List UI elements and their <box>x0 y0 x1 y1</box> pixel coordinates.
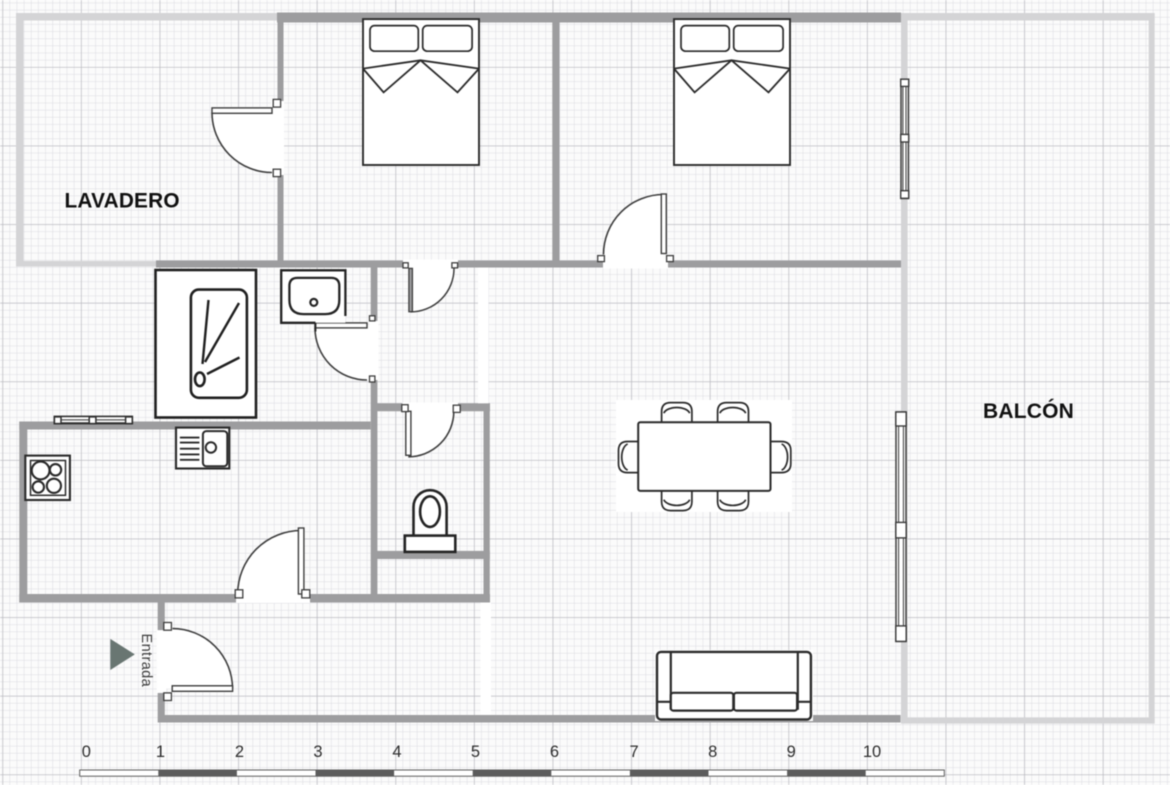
svg-text:10: 10 <box>863 743 881 761</box>
svg-text:0: 0 <box>82 743 91 761</box>
svg-text:8: 8 <box>708 743 717 761</box>
svg-text:BALCÓN: BALCÓN <box>983 399 1074 423</box>
svg-text:2: 2 <box>235 743 244 761</box>
svg-text:6: 6 <box>550 743 559 761</box>
svg-text:7: 7 <box>630 743 639 761</box>
svg-text:5: 5 <box>471 743 480 761</box>
svg-text:LAVADERO: LAVADERO <box>65 190 180 213</box>
svg-text:4: 4 <box>392 743 401 761</box>
svg-text:Entrada: Entrada <box>138 634 154 688</box>
svg-text:1: 1 <box>156 743 165 761</box>
svg-text:3: 3 <box>313 743 322 761</box>
svg-text:9: 9 <box>787 743 796 761</box>
